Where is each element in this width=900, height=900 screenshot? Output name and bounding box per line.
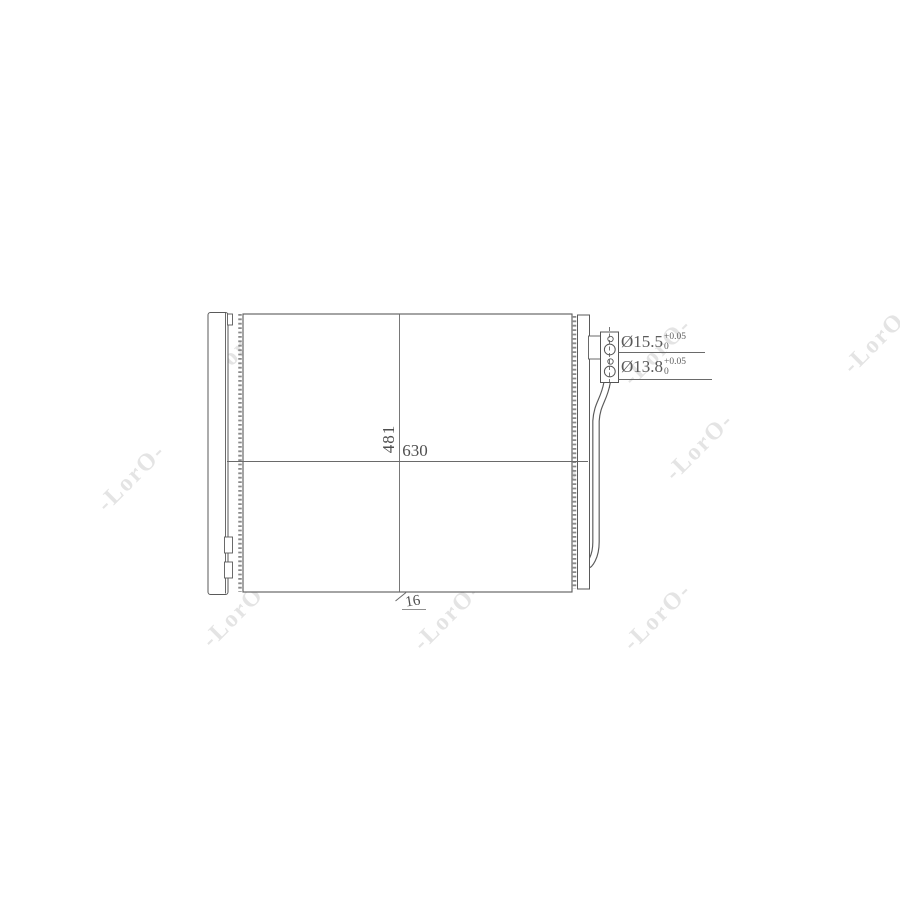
- port-diameter-value: Ø15.5: [621, 333, 663, 350]
- drier-bracket-lower: [225, 562, 233, 578]
- core-width-label: 630: [402, 441, 428, 461]
- fitting-stub: [589, 336, 601, 359]
- refrigerant-pipe: [588, 383, 607, 565]
- tolerance-lower: 0: [664, 343, 686, 353]
- receiver-drier: [208, 313, 233, 595]
- port-tolerance: +0.05 0: [664, 333, 686, 353]
- port-tolerance: +0.05 0: [664, 358, 686, 378]
- product-image-canvas: -LorO- -LorO- -LorO- -LorO- -LorO- -LorO…: [0, 0, 900, 900]
- port-diameter-label-bottom: Ø13.8 +0.05 0: [621, 358, 686, 378]
- core-depth-label: 16: [404, 592, 421, 611]
- fitting-block: [601, 327, 619, 388]
- condenser-line-drawing: [0, 0, 900, 900]
- drier-top-tab: [228, 314, 233, 325]
- core-height-label: 481: [379, 425, 399, 454]
- drier-bracket-upper: [225, 537, 233, 553]
- port-diameter-label-top: Ø15.5 +0.05 0: [621, 333, 686, 353]
- tolerance-lower: 0: [664, 368, 686, 378]
- right-header-tank: [578, 315, 590, 589]
- port-diameter-value: Ø13.8: [621, 358, 663, 375]
